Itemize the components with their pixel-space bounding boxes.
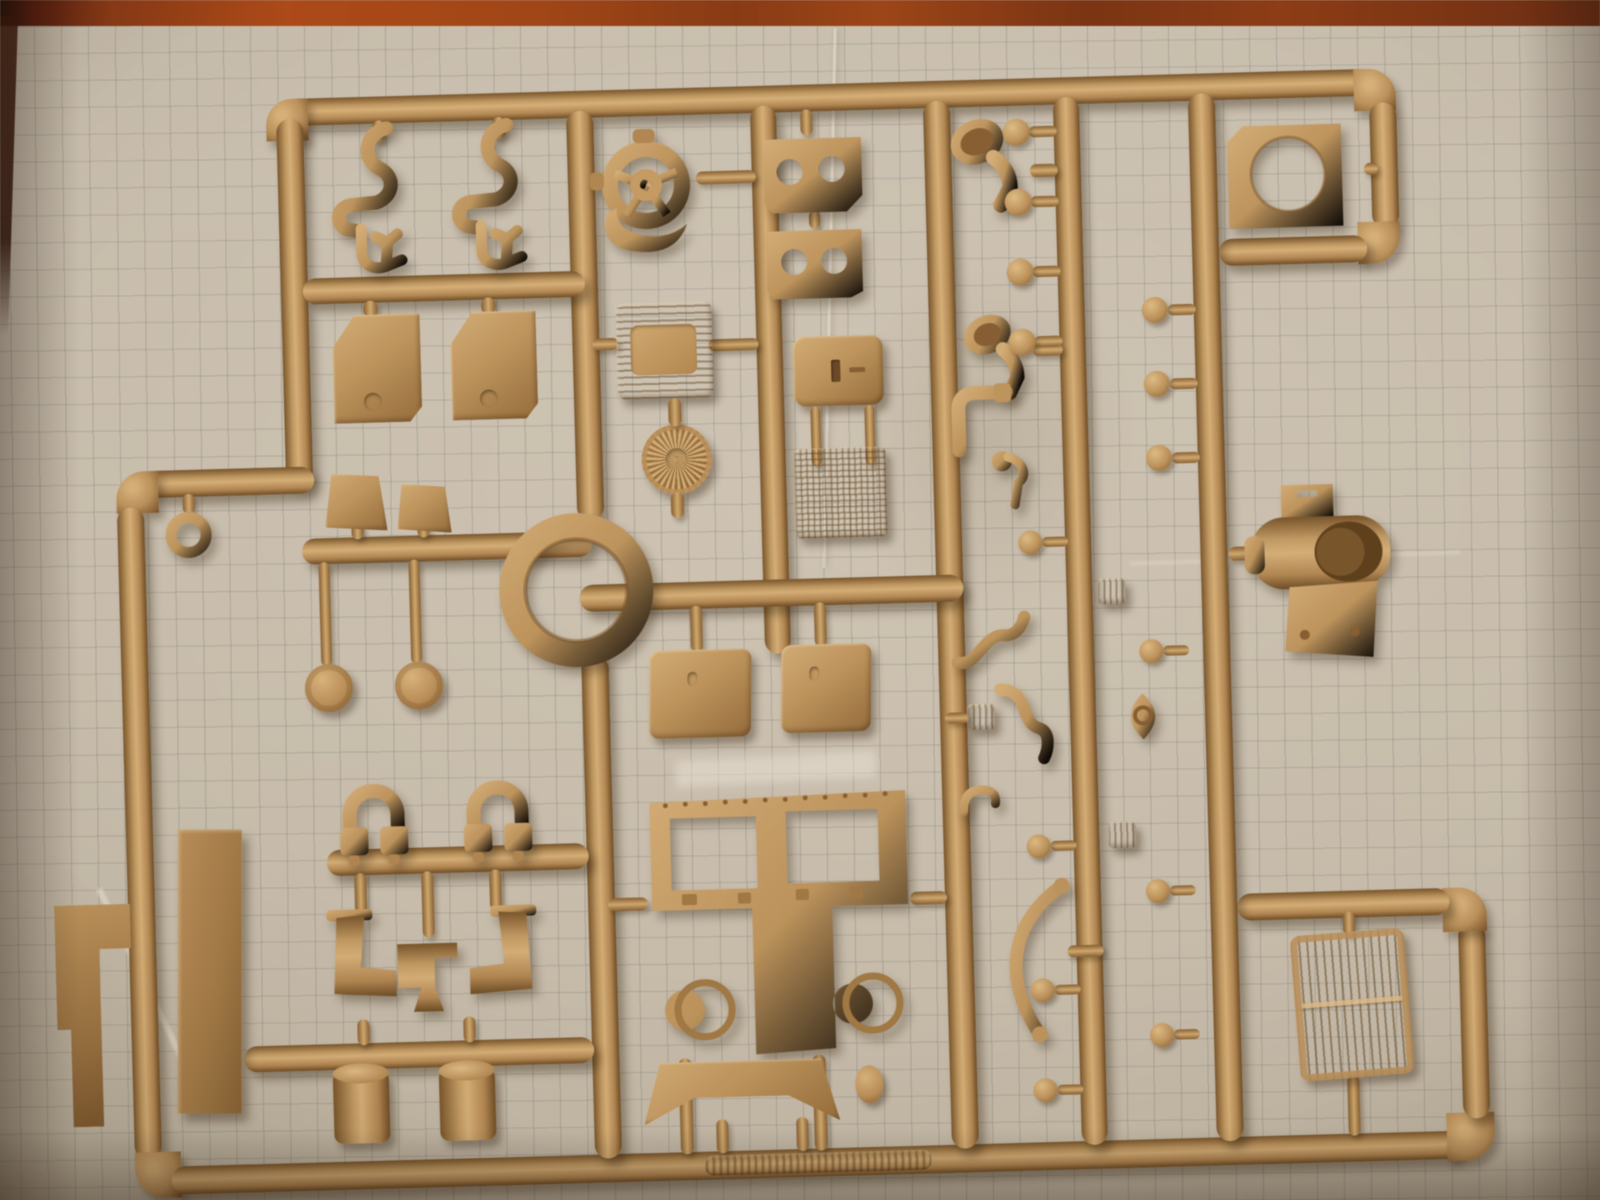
sprue-stub bbox=[708, 338, 758, 351]
seat-profile-part bbox=[462, 904, 541, 1020]
sprue-stub bbox=[592, 338, 618, 351]
sprue-stub bbox=[796, 1117, 809, 1151]
sprue-stub bbox=[945, 712, 969, 724]
leaf-spring-bow-part bbox=[988, 879, 1080, 1041]
wedge-bracket-part bbox=[324, 472, 388, 532]
cab-front-panel-part bbox=[643, 784, 918, 1063]
photo-of-model-kit-sprue bbox=[0, 0, 1600, 1200]
chassis-plate-two-holes-part bbox=[759, 131, 867, 218]
seat-profile-part bbox=[324, 908, 403, 1024]
sprue-stub bbox=[668, 398, 682, 426]
scene bbox=[0, 0, 1600, 1200]
sprue-stub bbox=[318, 562, 332, 666]
volute-fan-housing-part bbox=[586, 127, 706, 260]
sprue-stub bbox=[408, 560, 422, 664]
radiator-grille-part bbox=[1290, 927, 1415, 1082]
part-number-tag bbox=[967, 704, 996, 731]
sprue-stub bbox=[489, 869, 502, 909]
angle-bracket-part bbox=[54, 904, 136, 1128]
s-pipe-part bbox=[950, 608, 1032, 676]
part-number-tag bbox=[1108, 822, 1137, 849]
turret-plate-part bbox=[1220, 117, 1349, 234]
sprue-stub bbox=[421, 871, 435, 937]
sprue-stub bbox=[716, 1119, 729, 1153]
sprue-stub bbox=[910, 891, 947, 905]
road-wheel-disc-part bbox=[304, 663, 353, 712]
spade-pendant-part bbox=[1122, 691, 1163, 744]
fender-plate-part bbox=[332, 313, 423, 423]
fender-dimple bbox=[480, 389, 498, 407]
box-slot bbox=[831, 360, 841, 382]
pipe-clip-part bbox=[957, 781, 1004, 818]
fan-disc-part bbox=[641, 423, 713, 495]
door-panel-part bbox=[649, 648, 752, 739]
fender-plate-part bbox=[450, 310, 539, 420]
fan-disc-hub bbox=[665, 448, 688, 471]
door-handle bbox=[809, 666, 819, 680]
door-panel-part bbox=[781, 643, 872, 734]
sprue-runner-step bbox=[146, 466, 315, 498]
box-slot bbox=[849, 367, 865, 372]
mesh-screen-plate-part bbox=[793, 446, 887, 539]
sprue-corner bbox=[1442, 887, 1487, 932]
sprue-corner bbox=[1446, 1112, 1495, 1161]
door-handle bbox=[687, 672, 697, 686]
sprue-corner bbox=[116, 471, 159, 514]
drum-rim bbox=[332, 1063, 389, 1085]
sprue-stub bbox=[690, 606, 703, 652]
sprue-parts-tree bbox=[0, 0, 1600, 1200]
sprue-stub bbox=[1364, 163, 1378, 175]
d-shackle-part bbox=[335, 778, 413, 868]
large-turret-ring-part bbox=[495, 509, 657, 671]
sprue-stub bbox=[608, 897, 648, 911]
drum-part bbox=[333, 1071, 391, 1145]
sprue-stub bbox=[814, 602, 827, 646]
chassis-plate-two-holes-part bbox=[761, 225, 869, 304]
bumper-plate-part bbox=[643, 1058, 841, 1125]
fender-dimple bbox=[364, 393, 382, 411]
flat-bar-part bbox=[178, 830, 242, 1114]
d-shackle-part bbox=[458, 774, 536, 864]
sprue-runner-loop2-right bbox=[1458, 922, 1490, 1119]
bent-lever-part bbox=[989, 446, 1039, 511]
s-pipe-part bbox=[988, 682, 1056, 764]
wedge-bracket-part bbox=[396, 483, 451, 534]
t-bracket-part bbox=[395, 935, 461, 1015]
stowage-box-part bbox=[792, 335, 884, 407]
radiator-frame bbox=[1290, 927, 1415, 1082]
drum-rim bbox=[438, 1060, 495, 1082]
sprue-stub bbox=[671, 492, 685, 518]
vent-inner-panel bbox=[630, 324, 697, 376]
oval-pad-part bbox=[855, 1065, 884, 1104]
small-eye-ring-part bbox=[163, 509, 214, 560]
sprue-stub bbox=[1347, 1075, 1361, 1135]
louvered-vent-plate-part bbox=[615, 301, 714, 400]
crank-lever-part bbox=[324, 123, 432, 282]
crank-lever-part bbox=[444, 120, 552, 279]
sprue-runner-h5 bbox=[244, 1037, 595, 1073]
sprue-runner-left-outer bbox=[117, 507, 162, 1159]
road-wheel-disc-part bbox=[394, 661, 443, 710]
sprue-stub bbox=[354, 873, 367, 913]
sprue-stub bbox=[696, 170, 756, 185]
part-number-tag bbox=[1097, 578, 1126, 605]
drum-part bbox=[439, 1068, 497, 1142]
sprue-runner-loop1-bottom bbox=[1219, 235, 1368, 266]
engine-block-part bbox=[1243, 480, 1402, 670]
